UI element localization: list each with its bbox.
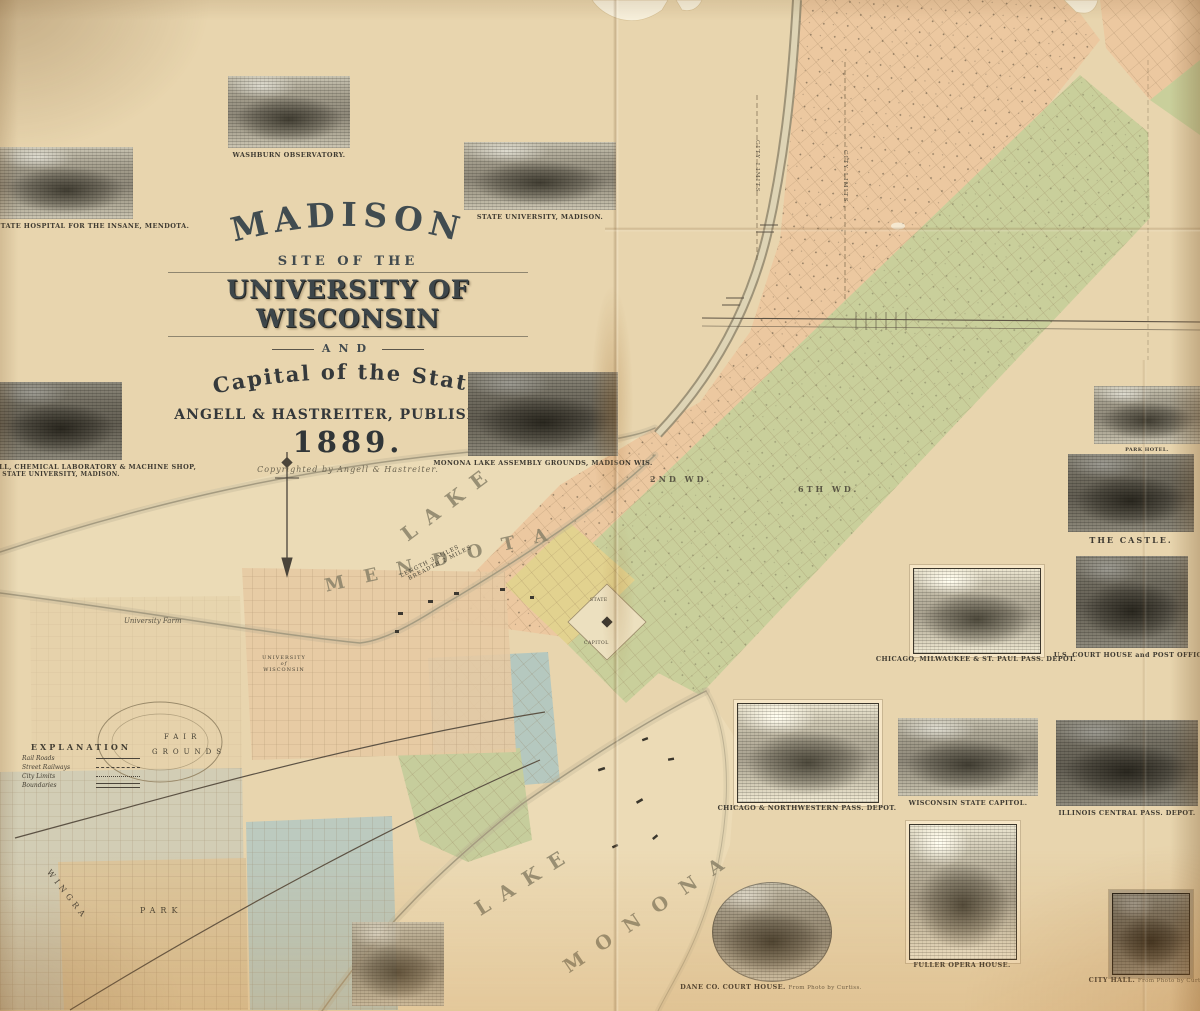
vignette-caption: CITY HALL. From Photo by Curtiss. — [1089, 976, 1200, 984]
vignette-caption-text: DANE CO. COURT HOUSE. — [680, 983, 786, 991]
engraving-state-university — [464, 142, 616, 210]
legend-row-boundaries: Boundaries — [22, 782, 140, 789]
vignette-state-capitol: WISCONSIN STATE CAPITOL. — [898, 718, 1038, 796]
title-line5: Capital of the State — [210, 359, 485, 399]
vignette-lakeshore-scene — [352, 922, 444, 1006]
vignette-monona-assembly-grounds: MONONA LAKE ASSEMBLY GROUNDS, MADISON WI… — [468, 372, 618, 456]
engraving-illinois-central-depot — [1056, 720, 1198, 806]
vignette-caption: CHICAGO & NORTHWESTERN PASS. DEPOT. — [718, 804, 897, 812]
engraving-cmstp-depot — [913, 568, 1041, 654]
label-park: PARK — [140, 906, 182, 915]
legend-line-sample — [96, 767, 140, 768]
label-city-limits-a: CITY LIMITS — [842, 150, 848, 203]
legend-label: Street Railways — [22, 764, 70, 771]
legend-line-sample — [96, 783, 140, 788]
vignette-caption: NEW SCIENCE HALL, CHEMICAL LABORATORY & … — [0, 463, 196, 471]
vignette-dane-court-house: DANE CO. COURT HOUSE. From Photo by Curt… — [712, 882, 830, 980]
label-fair: FAIR — [164, 733, 201, 741]
engraving-park-hotel — [1094, 386, 1200, 444]
vignette-cmstp-depot: CHICAGO, MILWAUKEE & ST. PAUL PASS. DEPO… — [913, 568, 1039, 652]
svg-text:MADISON: MADISON — [227, 195, 469, 250]
svg-text:Capital of the State: Capital of the State — [210, 359, 485, 399]
vignette-caption: MONONA LAKE ASSEMBLY GROUNDS, MADISON WI… — [433, 459, 652, 467]
label-capitol-state: STATE — [590, 598, 608, 603]
vignette-state-university: STATE UNIVERSITY, MADISON. — [464, 142, 616, 210]
vignette-caption: WISCONSIN STATE CAPITOL. — [909, 799, 1028, 807]
legend-explanation: EXPLANATION Rail Roads Street Railways C… — [22, 742, 140, 789]
engraving-state-hospital — [0, 147, 133, 219]
engraving-court-house-post-office — [1076, 556, 1188, 648]
title-main: MADISON — [227, 195, 469, 250]
engraving-observatory — [228, 76, 350, 148]
vignette-caption: U.S. COURT HOUSE and POST OFFICE. — [1054, 651, 1200, 659]
label-university: UNIVERSITY of WISCONSIN — [252, 655, 316, 673]
vignette-science-hall: NEW SCIENCE HALL, CHEMICAL LABORATORY & … — [0, 382, 122, 460]
photo-the-castle — [1068, 454, 1194, 532]
vignette-fuller-opera-house: FULLER OPERA HOUSE. — [909, 824, 1015, 958]
label-grounds: GROUNDS — [152, 748, 226, 756]
label-capitol-capitol: CAPITOL — [584, 641, 609, 646]
title-line2: SITE OF THE — [168, 254, 528, 269]
vignette-cnw-depot: CHICAGO & NORTHWESTERN PASS. DEPOT. — [737, 703, 877, 801]
vignette-caption-line2: STATE UNIVERSITY, MADISON. — [2, 471, 119, 478]
engraving-science-hall — [0, 382, 122, 460]
vignette-caption: THE CASTLE. — [1089, 535, 1172, 545]
vignette-state-hospital: WISCONSIN STATE HOSPITAL FOR THE INSANE,… — [0, 147, 133, 219]
engraving-state-capitol — [898, 718, 1038, 796]
vignette-caption: WISCONSIN STATE HOSPITAL FOR THE INSANE,… — [0, 222, 189, 230]
vignette-caption-credit: From Photo by Curtiss. — [1138, 978, 1200, 984]
title-line4: AND — [168, 342, 528, 355]
photo-cnw-depot — [737, 703, 879, 803]
vignette-caption-credit: From Photo by Curtiss. — [788, 985, 861, 991]
legend-label: Boundaries — [22, 782, 57, 789]
legend-line-sample — [96, 776, 140, 777]
title-line3: UNIVERSITY OF WISCONSIN — [168, 272, 528, 337]
vignette-washburn-observatory: WASHBURN OBSERVATORY. — [228, 76, 350, 148]
label-university-farm: University Farm — [124, 617, 181, 625]
label-city-limits-b: CITY LIMITS — [754, 140, 760, 193]
vignette-caption: WASHBURN OBSERVATORY. — [233, 151, 346, 159]
legend-title: EXPLANATION — [22, 742, 140, 752]
legend-row-street-railways: Street Railways — [22, 764, 140, 771]
label-ward-6: 6TH WD. — [798, 484, 859, 494]
vignette-caption: CHICAGO, MILWAUKEE & ST. PAUL PASS. DEPO… — [876, 655, 1076, 663]
vignette-caption: STATE UNIVERSITY, MADISON. — [477, 213, 603, 221]
vignette-caption: ILLINOIS CENTRAL PASS. DEPOT. — [1058, 809, 1195, 817]
engraving-lakeshore-scene — [352, 922, 444, 1006]
vignette-park-hotel: PARK HOTEL. — [1094, 386, 1200, 444]
legend-row-city-limits: City Limits — [22, 773, 140, 780]
vignette-the-castle: THE CASTLE. — [1068, 454, 1194, 532]
legend-line-sample — [96, 758, 140, 759]
legend-label: Rail Roads — [22, 755, 55, 762]
engraving-assembly-grounds — [468, 372, 618, 456]
legend-row-railroads: Rail Roads — [22, 755, 140, 762]
legend-label: City Limits — [22, 773, 55, 780]
engraving-fuller-opera-house — [909, 824, 1017, 960]
vignette-illinois-central-depot: ILLINOIS CENTRAL PASS. DEPOT. — [1056, 720, 1198, 806]
vignette-caption: PARK HOTEL. — [1125, 447, 1169, 453]
vignette-us-court-house: U.S. COURT HOUSE and POST OFFICE. — [1076, 556, 1188, 648]
engraving-dane-court-house — [712, 882, 832, 982]
label-university-line3: WISCONSIN — [252, 667, 316, 673]
engraving-city-hall — [1112, 893, 1190, 975]
vignette-caption: DANE CO. COURT HOUSE. From Photo by Curt… — [680, 983, 862, 991]
antique-map-madison-1889: MADISON SITE OF THE UNIVERSITY OF WISCON… — [0, 0, 1200, 1011]
vignette-caption-text: CITY HALL. — [1089, 976, 1136, 984]
vignette-caption: FULLER OPERA HOUSE. — [913, 961, 1010, 969]
label-ward-2: 2ND WD. — [650, 474, 712, 484]
vignette-city-hall: CITY HALL. From Photo by Curtiss. — [1112, 893, 1188, 973]
